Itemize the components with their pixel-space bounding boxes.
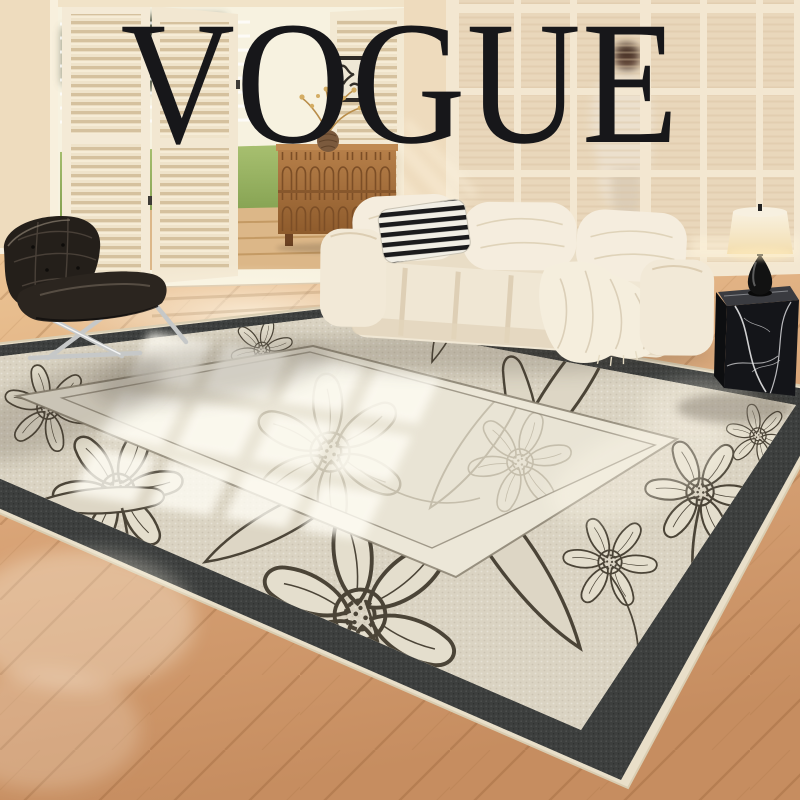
black-marble-cube-table [714, 286, 799, 396]
credenza-leg [285, 234, 293, 246]
sofa-right-arm [640, 259, 715, 356]
sofa-left-arm [320, 228, 387, 327]
product-photo-living-room: VOGUE [0, 0, 800, 800]
lamp-glow [727, 248, 793, 260]
lamp-finial [758, 204, 762, 211]
lamp-shade [727, 212, 793, 254]
vogue-logo-text: VOGUE [40, 0, 760, 172]
table-front-face [724, 300, 799, 396]
